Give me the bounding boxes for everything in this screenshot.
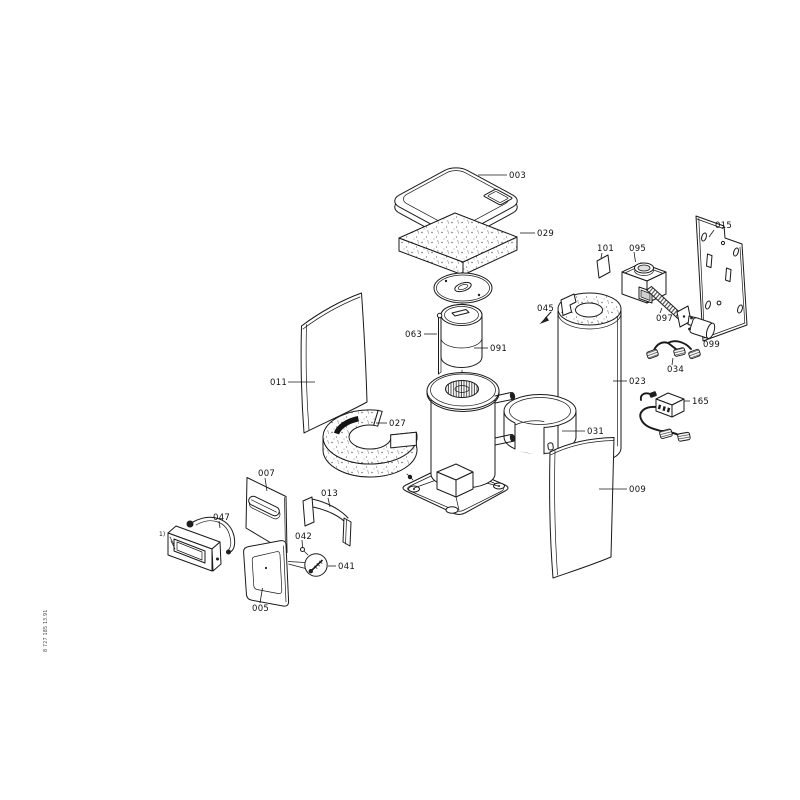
part-inner-cylinder <box>441 305 482 368</box>
part-label-097: 097 <box>656 314 673 324</box>
part-label-031: 031 <box>587 427 604 437</box>
doc-number: 8 727 185 1 <box>43 621 49 652</box>
svg-text:8 727 185 1: 8 727 185 1 <box>43 621 49 652</box>
part-label-023: 023 <box>629 377 646 387</box>
callout-099: 099 <box>703 338 720 350</box>
part-label-047: 047 <box>213 513 230 523</box>
flange-cover-disk <box>434 273 492 303</box>
part-label-091: 091 <box>490 344 507 354</box>
part-label-007: 007 <box>258 469 275 479</box>
control-knob <box>187 521 194 528</box>
part-label-003: 003 <box>509 171 526 181</box>
part-label-101: 101 <box>597 244 614 254</box>
part-label-009: 009 <box>629 485 646 495</box>
part-label-095: 095 <box>629 244 646 254</box>
part-label-011: 011 <box>270 378 287 388</box>
part-label-045: 045 <box>537 304 554 314</box>
part-label-029: 029 <box>537 229 554 239</box>
part-right-panel <box>548 438 614 579</box>
part-label-165: 165 <box>692 397 709 407</box>
footnote-marker: 1) <box>159 531 165 538</box>
part-label-034: 034 <box>667 365 684 375</box>
part-label-042: 042 <box>295 532 312 542</box>
part-label-005: 005 <box>252 604 269 614</box>
part-front-lower-panel <box>244 541 289 607</box>
callout-045: 045 <box>537 304 554 314</box>
svg-text:3.91: 3.91 <box>43 610 49 621</box>
part-label-063: 063 <box>405 330 422 340</box>
exploded-parts-diagram-page: 003 029 101 095 015 097 099 034 045 063 … <box>0 0 800 800</box>
part-label-013: 013 <box>321 489 338 499</box>
part-label-041: 041 <box>338 562 355 572</box>
part-label-027: 027 <box>389 419 406 429</box>
doc-revision: 3.91 <box>43 610 49 621</box>
exploded-diagram: 003 029 101 095 015 097 099 034 045 063 … <box>0 0 800 800</box>
part-label-015: 015 <box>715 221 732 231</box>
part-label-099: 099 <box>703 340 720 350</box>
